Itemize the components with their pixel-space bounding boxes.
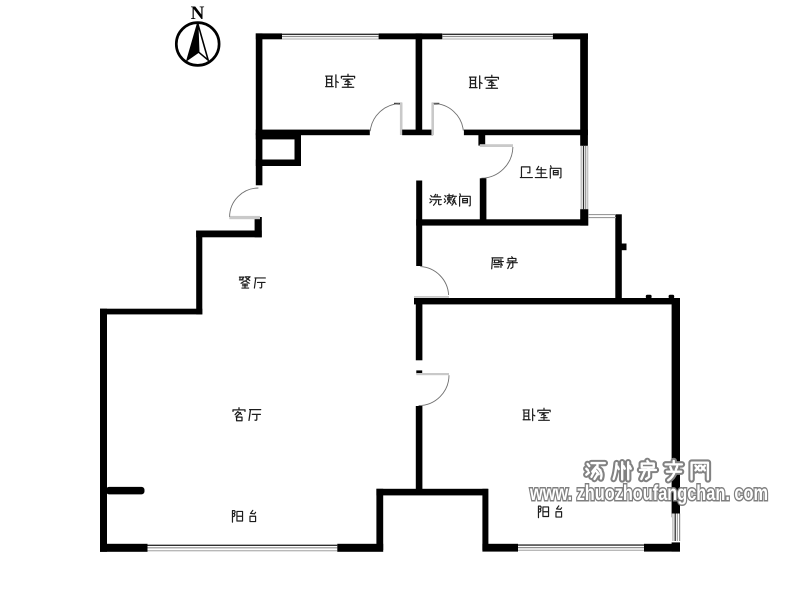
svg-text:N: N (191, 3, 205, 24)
svg-text:www. zhuozhoufangchan. com: www. zhuozhoufangchan. com (529, 481, 768, 505)
